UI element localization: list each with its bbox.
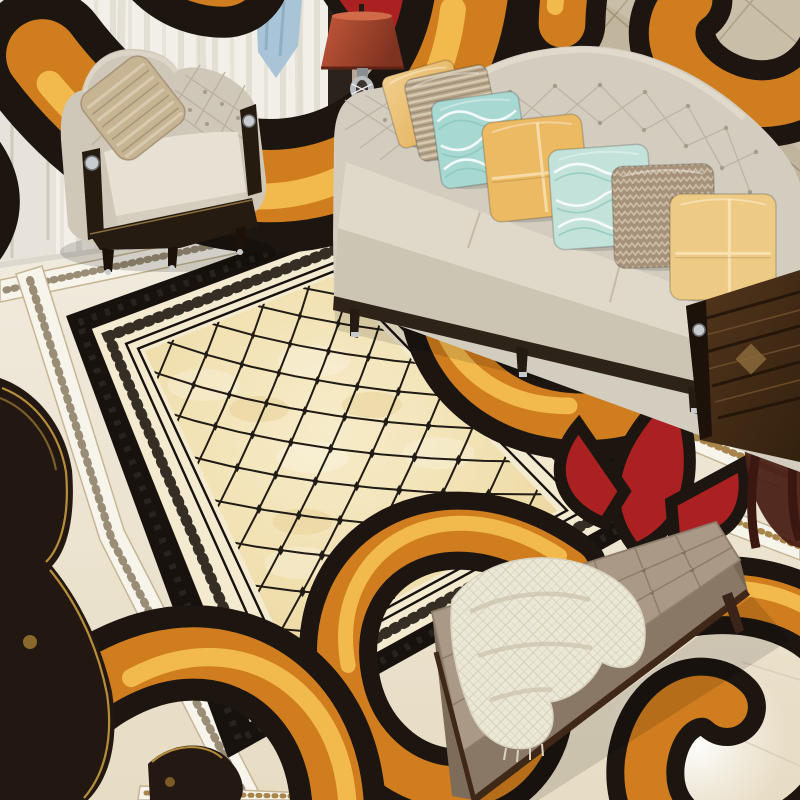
scene-photo	[0, 0, 800, 800]
lamp-neck	[357, 68, 368, 77]
gold-rosette	[23, 635, 37, 649]
post-medallion-right	[243, 115, 255, 127]
lamp-shade-top	[332, 12, 392, 21]
leg-knob	[165, 777, 175, 787]
lamp-shade	[321, 16, 404, 68]
post-medallion-left	[85, 156, 99, 170]
living-room-scene	[0, 0, 800, 800]
arm-column-medallion	[693, 324, 705, 336]
